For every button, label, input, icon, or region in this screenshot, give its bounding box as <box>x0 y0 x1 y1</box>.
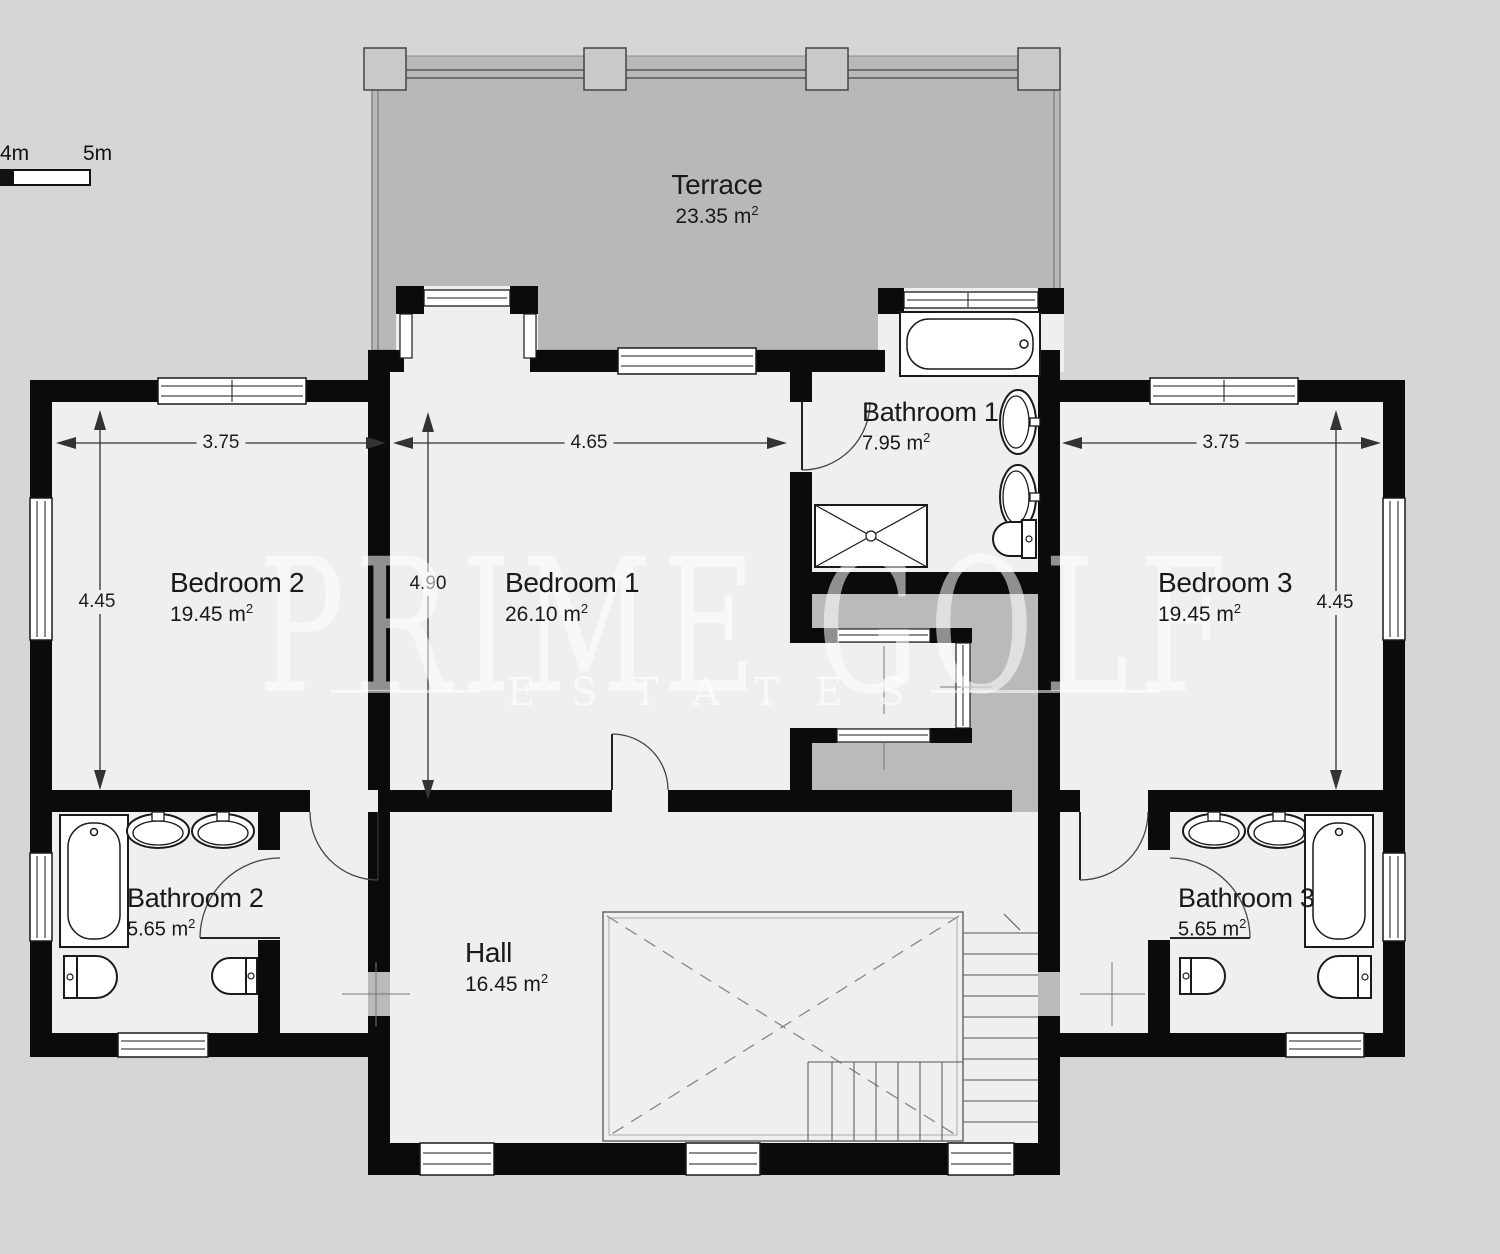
window-icon <box>30 498 52 640</box>
window-icon <box>158 378 306 404</box>
bidet-icon <box>1180 958 1225 994</box>
window-icon <box>1150 378 1298 404</box>
pillar-icon <box>806 48 848 90</box>
watermark-rule-left <box>330 690 480 693</box>
scale-bar <box>1 170 90 185</box>
threshold <box>1012 790 1038 812</box>
terrace-label: Terrace 23.35 m2 <box>671 170 762 228</box>
bedroom-1-label: Bedroom 1 26.10 m2 <box>505 568 639 626</box>
bidet-icon <box>212 958 257 994</box>
floor-plan: PRIME GOLF ESTATES Terrace 23.35 m2 Bedr… <box>0 0 1500 1254</box>
bathroom-3-label: Bathroom 3 5.65 m2 <box>1178 884 1315 940</box>
room-name: Bedroom 3 <box>1158 568 1292 598</box>
dim-bedroom3-width: 3.75 <box>1197 431 1246 455</box>
bathroom-2-label: Bathroom 2 5.65 m2 <box>127 884 264 940</box>
dim-bedroom1-height: 4.90 <box>404 572 453 596</box>
toilet-icon <box>993 520 1036 558</box>
window-icon <box>420 1143 494 1175</box>
pillar-icon <box>584 48 626 90</box>
toilet-icon <box>1318 956 1371 998</box>
dim-bedroom1-width: 4.65 <box>565 431 614 455</box>
room-area: 19.45 m2 <box>1158 602 1292 626</box>
window-icon <box>948 1143 1014 1175</box>
room-name: Bathroom 2 <box>127 884 264 913</box>
room-area: 26.10 m2 <box>505 602 639 626</box>
room-name: Bedroom 2 <box>170 568 304 598</box>
window-icon <box>1383 853 1405 941</box>
bathtub-icon <box>900 312 1040 376</box>
room-area: 7.95 m2 <box>862 431 999 455</box>
room-name: Bathroom 1 <box>862 398 999 427</box>
window-icon <box>618 348 756 374</box>
bedroom-3-label: Bedroom 3 19.45 m2 <box>1158 568 1292 626</box>
watermark-rule-right <box>930 690 1160 693</box>
window-icon <box>424 290 510 306</box>
room-area: 5.65 m2 <box>127 917 264 941</box>
bay-opening <box>790 643 958 728</box>
scale-tick-5m: 5m <box>83 142 112 166</box>
dim-bedroom3-height: 4.45 <box>1311 591 1360 615</box>
window-icon <box>1286 1033 1364 1057</box>
pillar-icon <box>1018 48 1060 90</box>
room-area: 16.45 m2 <box>465 972 548 996</box>
bathtub-icon <box>60 815 128 947</box>
window-icon <box>118 1033 208 1057</box>
room-name: Hall <box>465 938 548 968</box>
shower-icon <box>815 505 927 567</box>
dim-bedroom2-width: 3.75 <box>197 431 246 455</box>
toilet-icon <box>64 956 117 998</box>
dim-bedroom2-height: 4.45 <box>73 590 122 614</box>
scale-tick-4m: 4m <box>0 142 29 166</box>
window-icon <box>1383 498 1405 640</box>
window-icon <box>30 853 52 941</box>
room-name: Bathroom 3 <box>1178 884 1315 913</box>
threshold <box>1038 972 1060 1016</box>
room-area: 23.35 m2 <box>671 204 762 228</box>
hall-label: Hall 16.45 m2 <box>465 938 548 996</box>
room-name: Bedroom 1 <box>505 568 639 598</box>
room-area: 5.65 m2 <box>1178 917 1315 941</box>
pillar-icon <box>364 48 406 90</box>
room-name: Terrace <box>671 170 762 200</box>
window-icon <box>686 1143 760 1175</box>
bedroom-2-label: Bedroom 2 19.45 m2 <box>170 568 304 626</box>
room-area: 19.45 m2 <box>170 602 304 626</box>
bathroom-1-label: Bathroom 1 7.95 m2 <box>862 398 999 454</box>
bathtub-icon <box>1305 815 1373 947</box>
window-icon <box>904 292 1038 308</box>
